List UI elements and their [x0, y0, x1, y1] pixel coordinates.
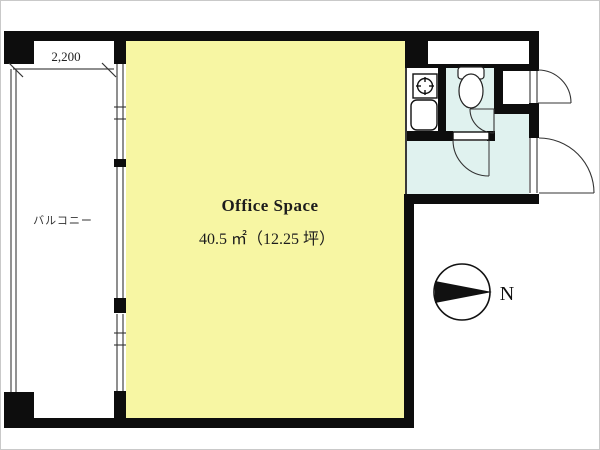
- office-room: [126, 41, 405, 418]
- north-label: N: [495, 283, 519, 305]
- entrance-door-top: [530, 70, 571, 103]
- wall-right-mid: [529, 103, 539, 138]
- compass-icon: [434, 264, 492, 320]
- wall-toilet-right: [494, 71, 503, 108]
- meter-box-area: [503, 71, 529, 104]
- office-title: Office Space: [150, 197, 390, 216]
- balcony-label: バルコニー: [15, 215, 111, 227]
- window-icon: [114, 64, 126, 391]
- dimension-ticks: [9, 63, 116, 77]
- wall-kitchen-toilet: [438, 68, 446, 132]
- wall-top: [4, 31, 539, 41]
- wall-office-right: [404, 197, 414, 428]
- entry-nook: [494, 114, 529, 141]
- hallway: [407, 141, 529, 194]
- kitchenette-area: [407, 68, 438, 132]
- wall-kitchen-bottom: [405, 131, 453, 141]
- toilet-room: [446, 68, 494, 132]
- wall-door-stub: [487, 131, 495, 141]
- pipe-shaft-box: [428, 41, 529, 64]
- wall-corner-topleft: [4, 31, 34, 64]
- wall-window-stub: [114, 298, 126, 313]
- office-area-label: 40.5 ㎡（12.25 坪）: [147, 231, 387, 249]
- balcony-railing: [11, 69, 114, 392]
- floorplan-canvas: 2,200 バルコニー Office Space 40.5 ㎡（12.25 坪）…: [0, 0, 600, 450]
- entrance-door-bottom: [530, 138, 594, 193]
- wall-window-stub: [114, 159, 126, 167]
- wall-bottom: [34, 418, 414, 428]
- wall-window-stub: [114, 31, 126, 64]
- wall-hallway-bottom: [404, 194, 539, 204]
- balcony-dimension-label: 2,200: [31, 50, 101, 64]
- wall-corner-bottomleft: [4, 392, 34, 428]
- office-hallway-boundary: [405, 68, 407, 194]
